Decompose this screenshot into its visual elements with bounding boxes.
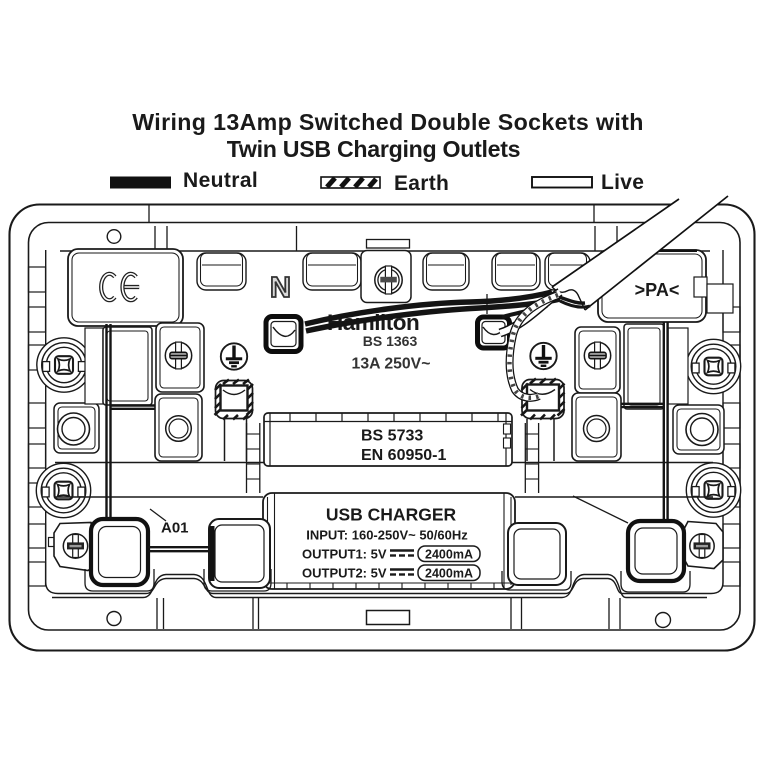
svg-text:USB CHARGER: USB CHARGER: [326, 505, 457, 525]
svg-text:>PA<: >PA<: [635, 280, 680, 300]
svg-text:EN 60950-1: EN 60950-1: [361, 447, 446, 464]
svg-text:Twin USB Charging Outlets: Twin USB Charging Outlets: [227, 136, 521, 162]
svg-text:BS 5733: BS 5733: [361, 428, 423, 445]
svg-text:Earth: Earth: [394, 172, 449, 195]
svg-text:Wiring 13Amp Switched Double S: Wiring 13Amp Switched Double Sockets wit…: [132, 109, 643, 135]
svg-text:Live: Live: [601, 171, 644, 194]
svg-text:Neutral: Neutral: [183, 169, 258, 192]
svg-text:INPUT: 160-250V~ 50/60Hz: INPUT: 160-250V~ 50/60Hz: [306, 528, 468, 543]
svg-text:2400mA: 2400mA: [425, 567, 473, 581]
svg-text:BS 1363: BS 1363: [363, 333, 418, 349]
svg-text:13A 250V~: 13A 250V~: [352, 356, 431, 373]
svg-text:2400mA: 2400mA: [425, 548, 473, 562]
svg-text:OUTPUT1: 5V: OUTPUT1: 5V: [302, 547, 387, 562]
svg-text:A01: A01: [161, 520, 189, 537]
svg-text:OUTPUT2: 5V: OUTPUT2: 5V: [302, 566, 387, 581]
svg-text:N: N: [270, 272, 291, 304]
